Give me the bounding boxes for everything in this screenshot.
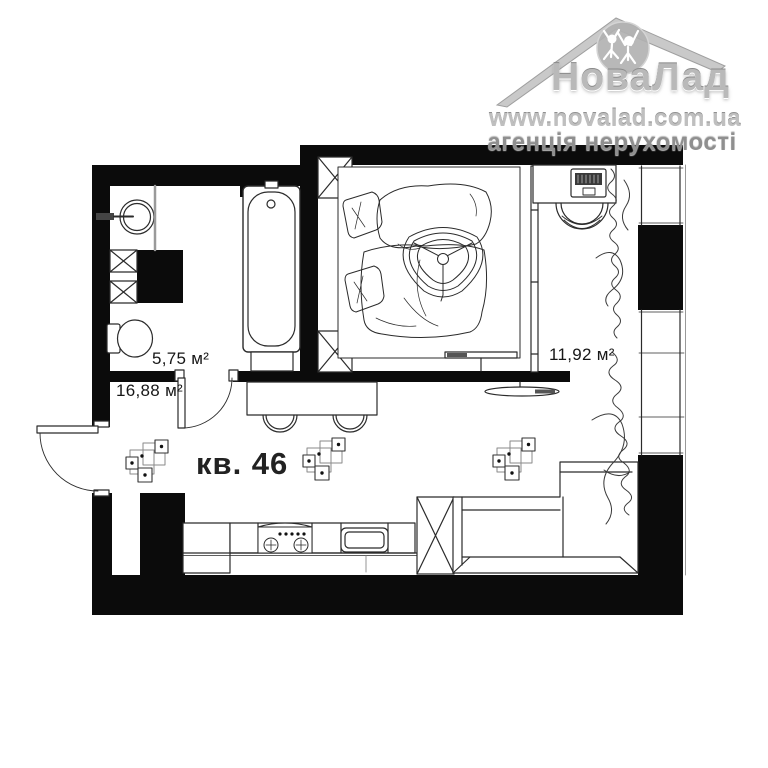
bedroom-tv-icon [445,352,517,371]
laptop-icon [571,169,606,197]
tub-step [251,352,293,371]
floor-tile-marker [303,438,345,480]
toilet-icon [107,320,153,357]
window-bottom [639,310,684,455]
bed [338,167,520,358]
window-top [639,166,683,225]
apartment-number-label: кв. 46 [196,446,288,482]
floor-tile-marker [126,440,168,482]
sink-icon [96,200,154,234]
bathroom-area-label: 5,75 м² [152,349,209,369]
kitchen-sink-icon [341,528,388,552]
dining-table [247,382,377,415]
living-tv-icon [485,382,559,396]
desk-chair-icon [556,203,608,229]
bathtub-icon [243,181,300,352]
dining-chair-icon [333,415,367,432]
dining-chair-icon [263,415,297,432]
ventilation-shaft-icon [110,250,137,303]
hall-area-label: 16,88 м² [116,381,183,401]
floor-plan-canvas: 5,75 м² 16,88 м² 11,92 м² кв. 46 НоваЛад… [0,0,768,768]
tall-cabinet-icon [417,497,454,574]
floor-tile-marker [493,438,535,480]
entry-door [37,421,109,496]
bathroom-door [175,370,238,428]
room-area-label: 11,92 м² [549,345,615,365]
stove-icon [258,523,312,553]
